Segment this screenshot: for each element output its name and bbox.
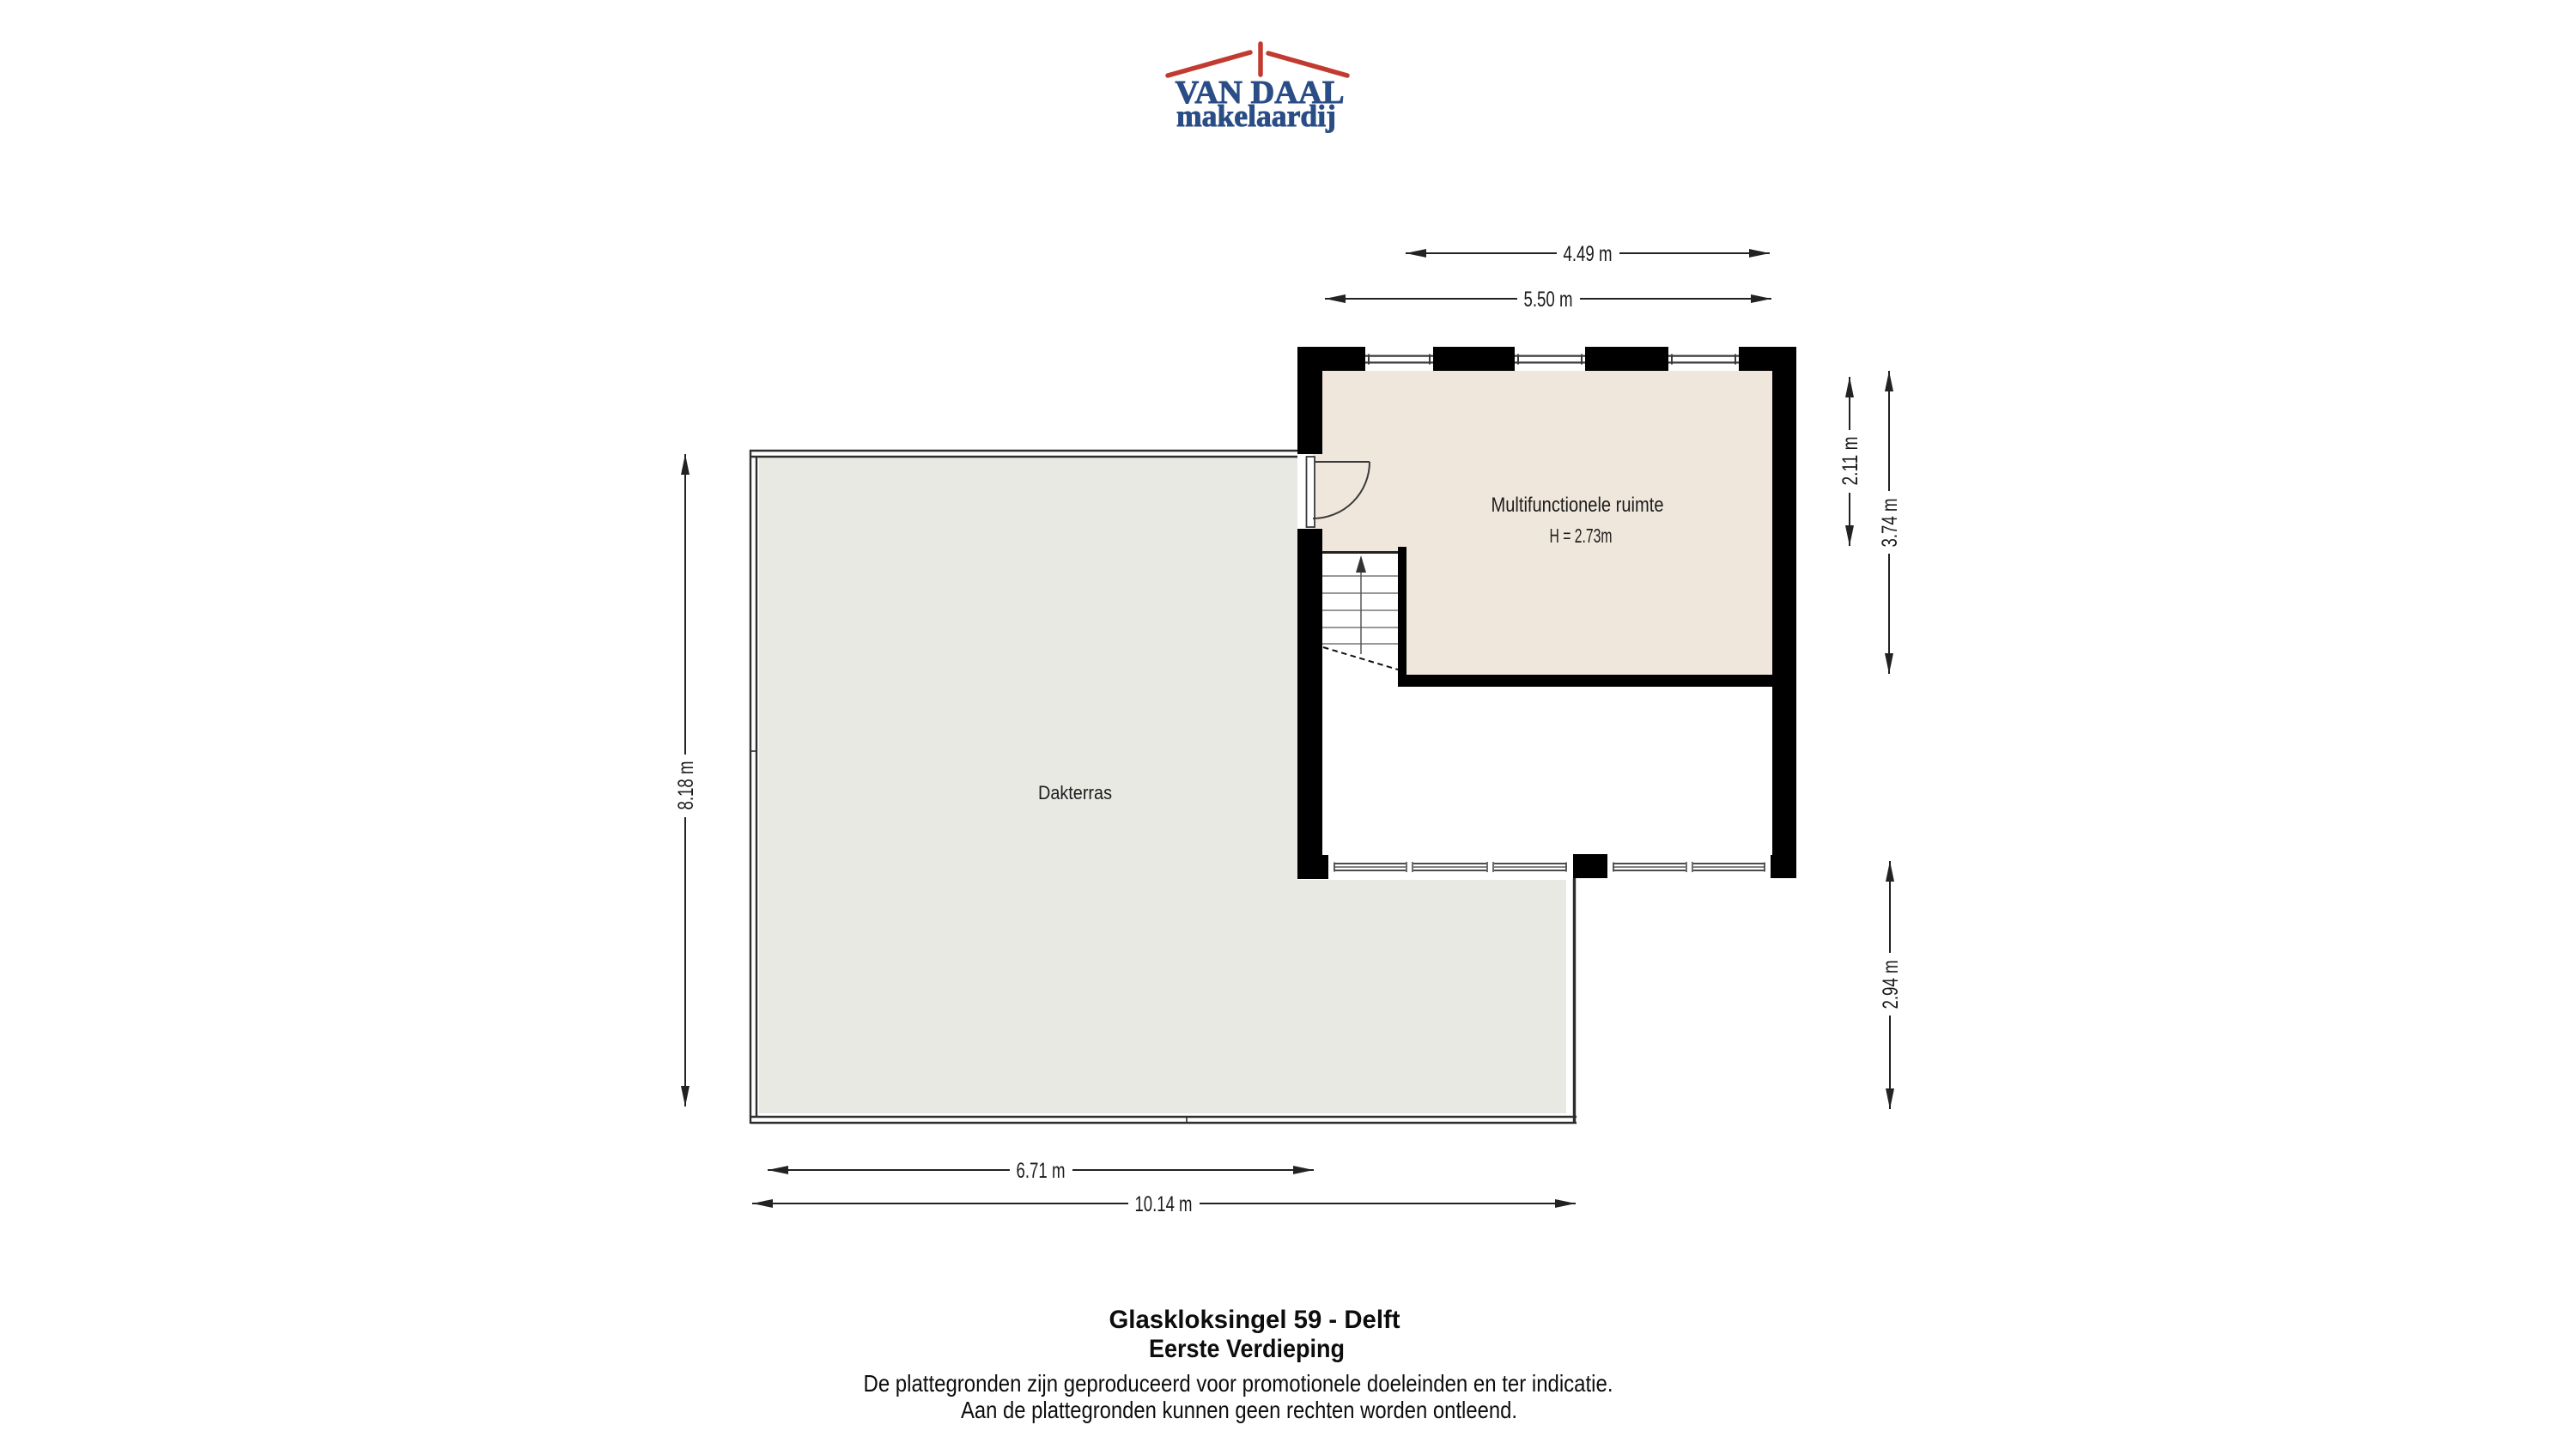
svg-text:3.74 m: 3.74 m [1878, 499, 1902, 548]
svg-text:Multifunctionele ruimte: Multifunctionele ruimte [1492, 494, 1664, 517]
svg-text:Eerste Verdieping: Eerste Verdieping [1149, 1335, 1345, 1363]
svg-text:De plattegronden zijn geproduc: De plattegronden zijn geproduceerd voor … [864, 1370, 1613, 1397]
svg-text:5.50 m: 5.50 m [1524, 288, 1573, 312]
svg-text:8.18 m: 8.18 m [674, 761, 698, 810]
svg-text:H = 2.73m: H = 2.73m [1550, 524, 1613, 547]
svg-text:Glaskloksingel 59 - Delft: Glaskloksingel 59 - Delft [1109, 1306, 1400, 1334]
svg-text:2.94 m: 2.94 m [1879, 961, 1903, 1009]
svg-text:Aan de plattegronden kunnen ge: Aan de plattegronden kunnen geen rechten… [961, 1397, 1517, 1423]
svg-text:6.71 m: 6.71 m [1017, 1159, 1066, 1183]
svg-text:2.11 m: 2.11 m [1838, 437, 1862, 486]
svg-text:10.14 m: 10.14 m [1135, 1192, 1193, 1216]
svg-text:makelaardij: makelaardij [1176, 99, 1336, 133]
svg-text:Dakterras: Dakterras [1038, 782, 1112, 803]
svg-text:4.49 m: 4.49 m [1564, 242, 1613, 266]
